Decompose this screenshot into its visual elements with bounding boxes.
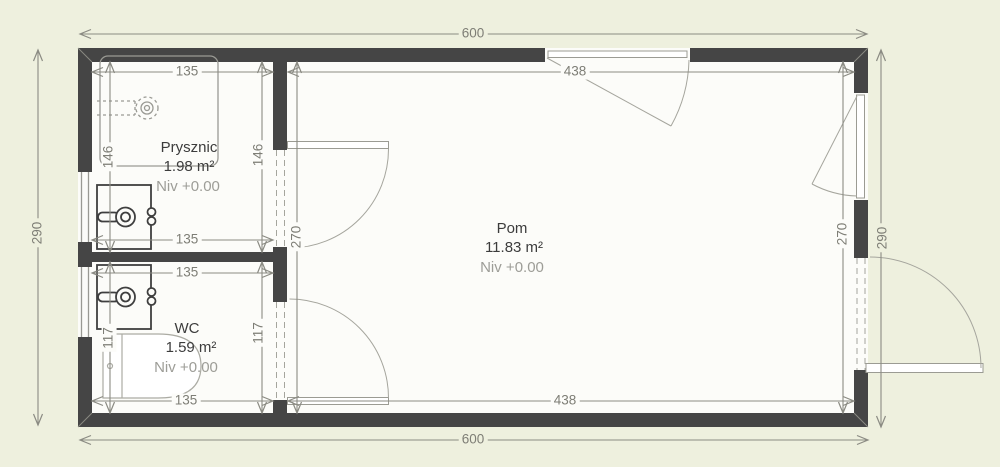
window-right-frame [857,95,865,198]
wall-left-lower [78,337,92,427]
tap-symbol [148,208,156,216]
dim-overall-width-bottom: 600 [459,433,488,448]
dim-pom-width-top: 438 [561,65,590,80]
tap-symbol [148,288,156,296]
tap-symbol [148,217,156,225]
room-label-wc-area: 1.59 m² [166,340,217,357]
faucet-inner [121,293,130,302]
wall-top-left-segment [78,48,545,62]
wall-right-middle [854,200,868,258]
door-prysznic-leaf [288,142,389,149]
dim-pom-depth-left: 270 [290,223,305,252]
partition-vertical-middle [273,247,287,302]
partition-vertical-lower [273,400,287,413]
door-entrance-swing-arc [870,257,981,368]
wall-left-middle [78,242,92,267]
door-top-panel [548,51,687,58]
dim-overall-width-top: 600 [459,27,488,42]
sink-wc [97,265,156,329]
dim-pom-width-bottom: 438 [551,394,580,409]
partition-horizontal [92,252,273,262]
wall-bottom [78,413,868,427]
sink-prysznic [97,185,156,249]
door-entrance-leaf [866,364,983,373]
tap-symbol [148,297,156,305]
room-label-wc-name: WC [175,321,200,338]
dim-overall-depth-right: 290 [876,224,891,253]
dim-wc-depth-left: 117 [102,324,117,352]
wall-top-right-segment [690,48,868,62]
room-label-prysznic-level: Niv +0.00 [156,179,220,196]
dim-prysznic-depth-left: 146 [102,143,117,172]
room-label-wc-level: Niv +0.00 [154,360,218,377]
room-label-pom-name: Pom [497,221,528,238]
dim-prysznic-width-bottom: 135 [173,233,202,248]
dim-wc-width-top: 135 [173,266,202,281]
room-label-prysznic-area: 1.98 m² [164,159,215,176]
faucet-inner [121,213,130,222]
wall-left-upper [78,48,92,172]
room-label-prysznic-name: Prysznic [161,140,218,157]
dim-wc-depth-right: 117 [252,319,267,347]
dim-prysznic-depth-right: 146 [252,141,267,170]
dim-pom-depth-right: 270 [836,220,851,249]
room-label-pom-level: Niv +0.00 [480,260,544,277]
floorplan-canvas: 600 600 290 290 438 438 270 270 135 135 … [0,0,1000,467]
dim-overall-depth-left: 290 [31,219,46,248]
room-label-pom-area: 11.83 m² [485,240,543,257]
dim-prysznic-width-top: 135 [173,65,202,80]
wall-right-lower [854,370,868,427]
dim-wc-width-bottom: 135 [172,394,201,409]
partition-vertical-upper [273,62,287,150]
